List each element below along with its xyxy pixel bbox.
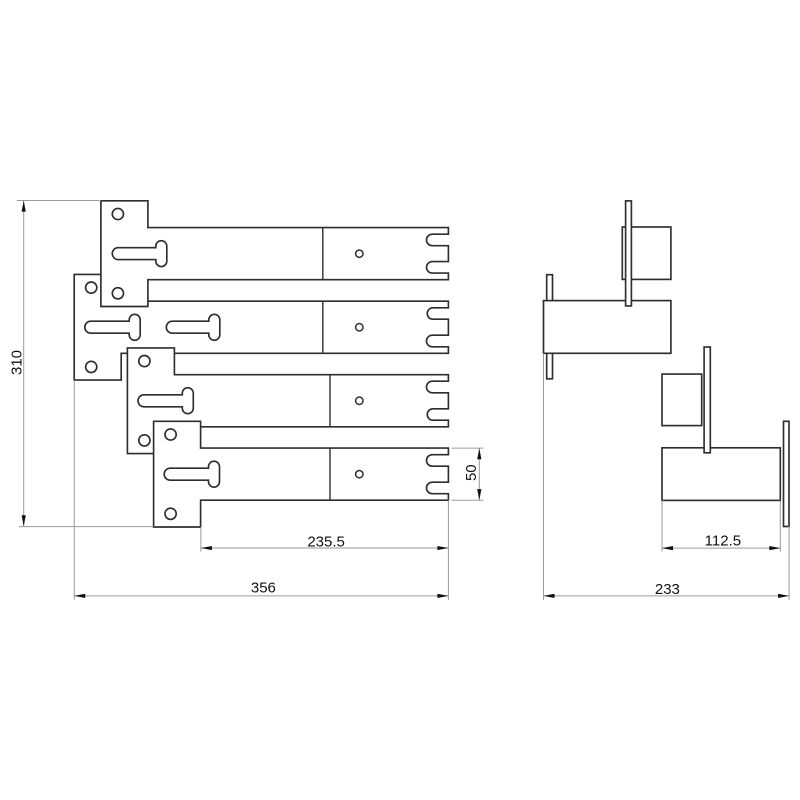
svg-text:112.5: 112.5 <box>705 532 741 549</box>
svg-text:310: 310 <box>8 350 25 375</box>
svg-text:235.5: 235.5 <box>307 533 345 550</box>
svg-text:233: 233 <box>655 581 680 598</box>
svg-text:356: 356 <box>251 580 276 597</box>
svg-text:50: 50 <box>463 464 480 481</box>
